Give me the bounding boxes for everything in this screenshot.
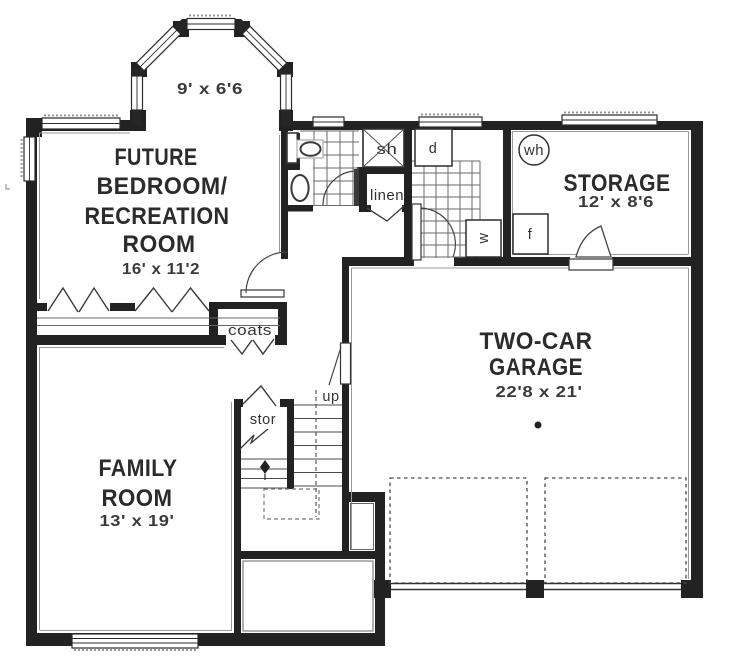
svg-text:w: w <box>476 232 492 244</box>
svg-text:9' x 6'6: 9' x 6'6 <box>177 81 243 98</box>
svg-text:linen: linen <box>370 188 404 204</box>
svg-text:FUTURE: FUTURE <box>115 144 198 171</box>
svg-text:ROOM: ROOM <box>123 231 196 258</box>
svg-text:stor: stor <box>250 412 276 428</box>
svg-text:12' x 8'6: 12' x 8'6 <box>578 194 654 211</box>
svg-text:GARAGE: GARAGE <box>489 354 583 381</box>
svg-text:ROOM: ROOM <box>102 485 173 512</box>
svg-text:TWO-CAR: TWO-CAR <box>480 328 593 355</box>
svg-text:sh: sh <box>377 142 398 158</box>
svg-text:RECREATION: RECREATION <box>85 203 230 230</box>
svg-text:STORAGE: STORAGE <box>564 170 671 197</box>
svg-text:16' x 11'2: 16' x 11'2 <box>122 261 200 278</box>
svg-text:f: f <box>528 227 533 243</box>
svg-text:d: d <box>429 141 438 157</box>
svg-text:up: up <box>322 389 339 405</box>
svg-text:BEDROOM/: BEDROOM/ <box>97 173 228 200</box>
svg-text:FAMILY: FAMILY <box>99 455 178 482</box>
svg-text:coats: coats <box>228 323 272 339</box>
svg-text:22'8 x 21': 22'8 x 21' <box>496 384 583 401</box>
svg-text:13' x 19': 13' x 19' <box>100 513 175 530</box>
svg-text:wh: wh <box>523 143 544 159</box>
